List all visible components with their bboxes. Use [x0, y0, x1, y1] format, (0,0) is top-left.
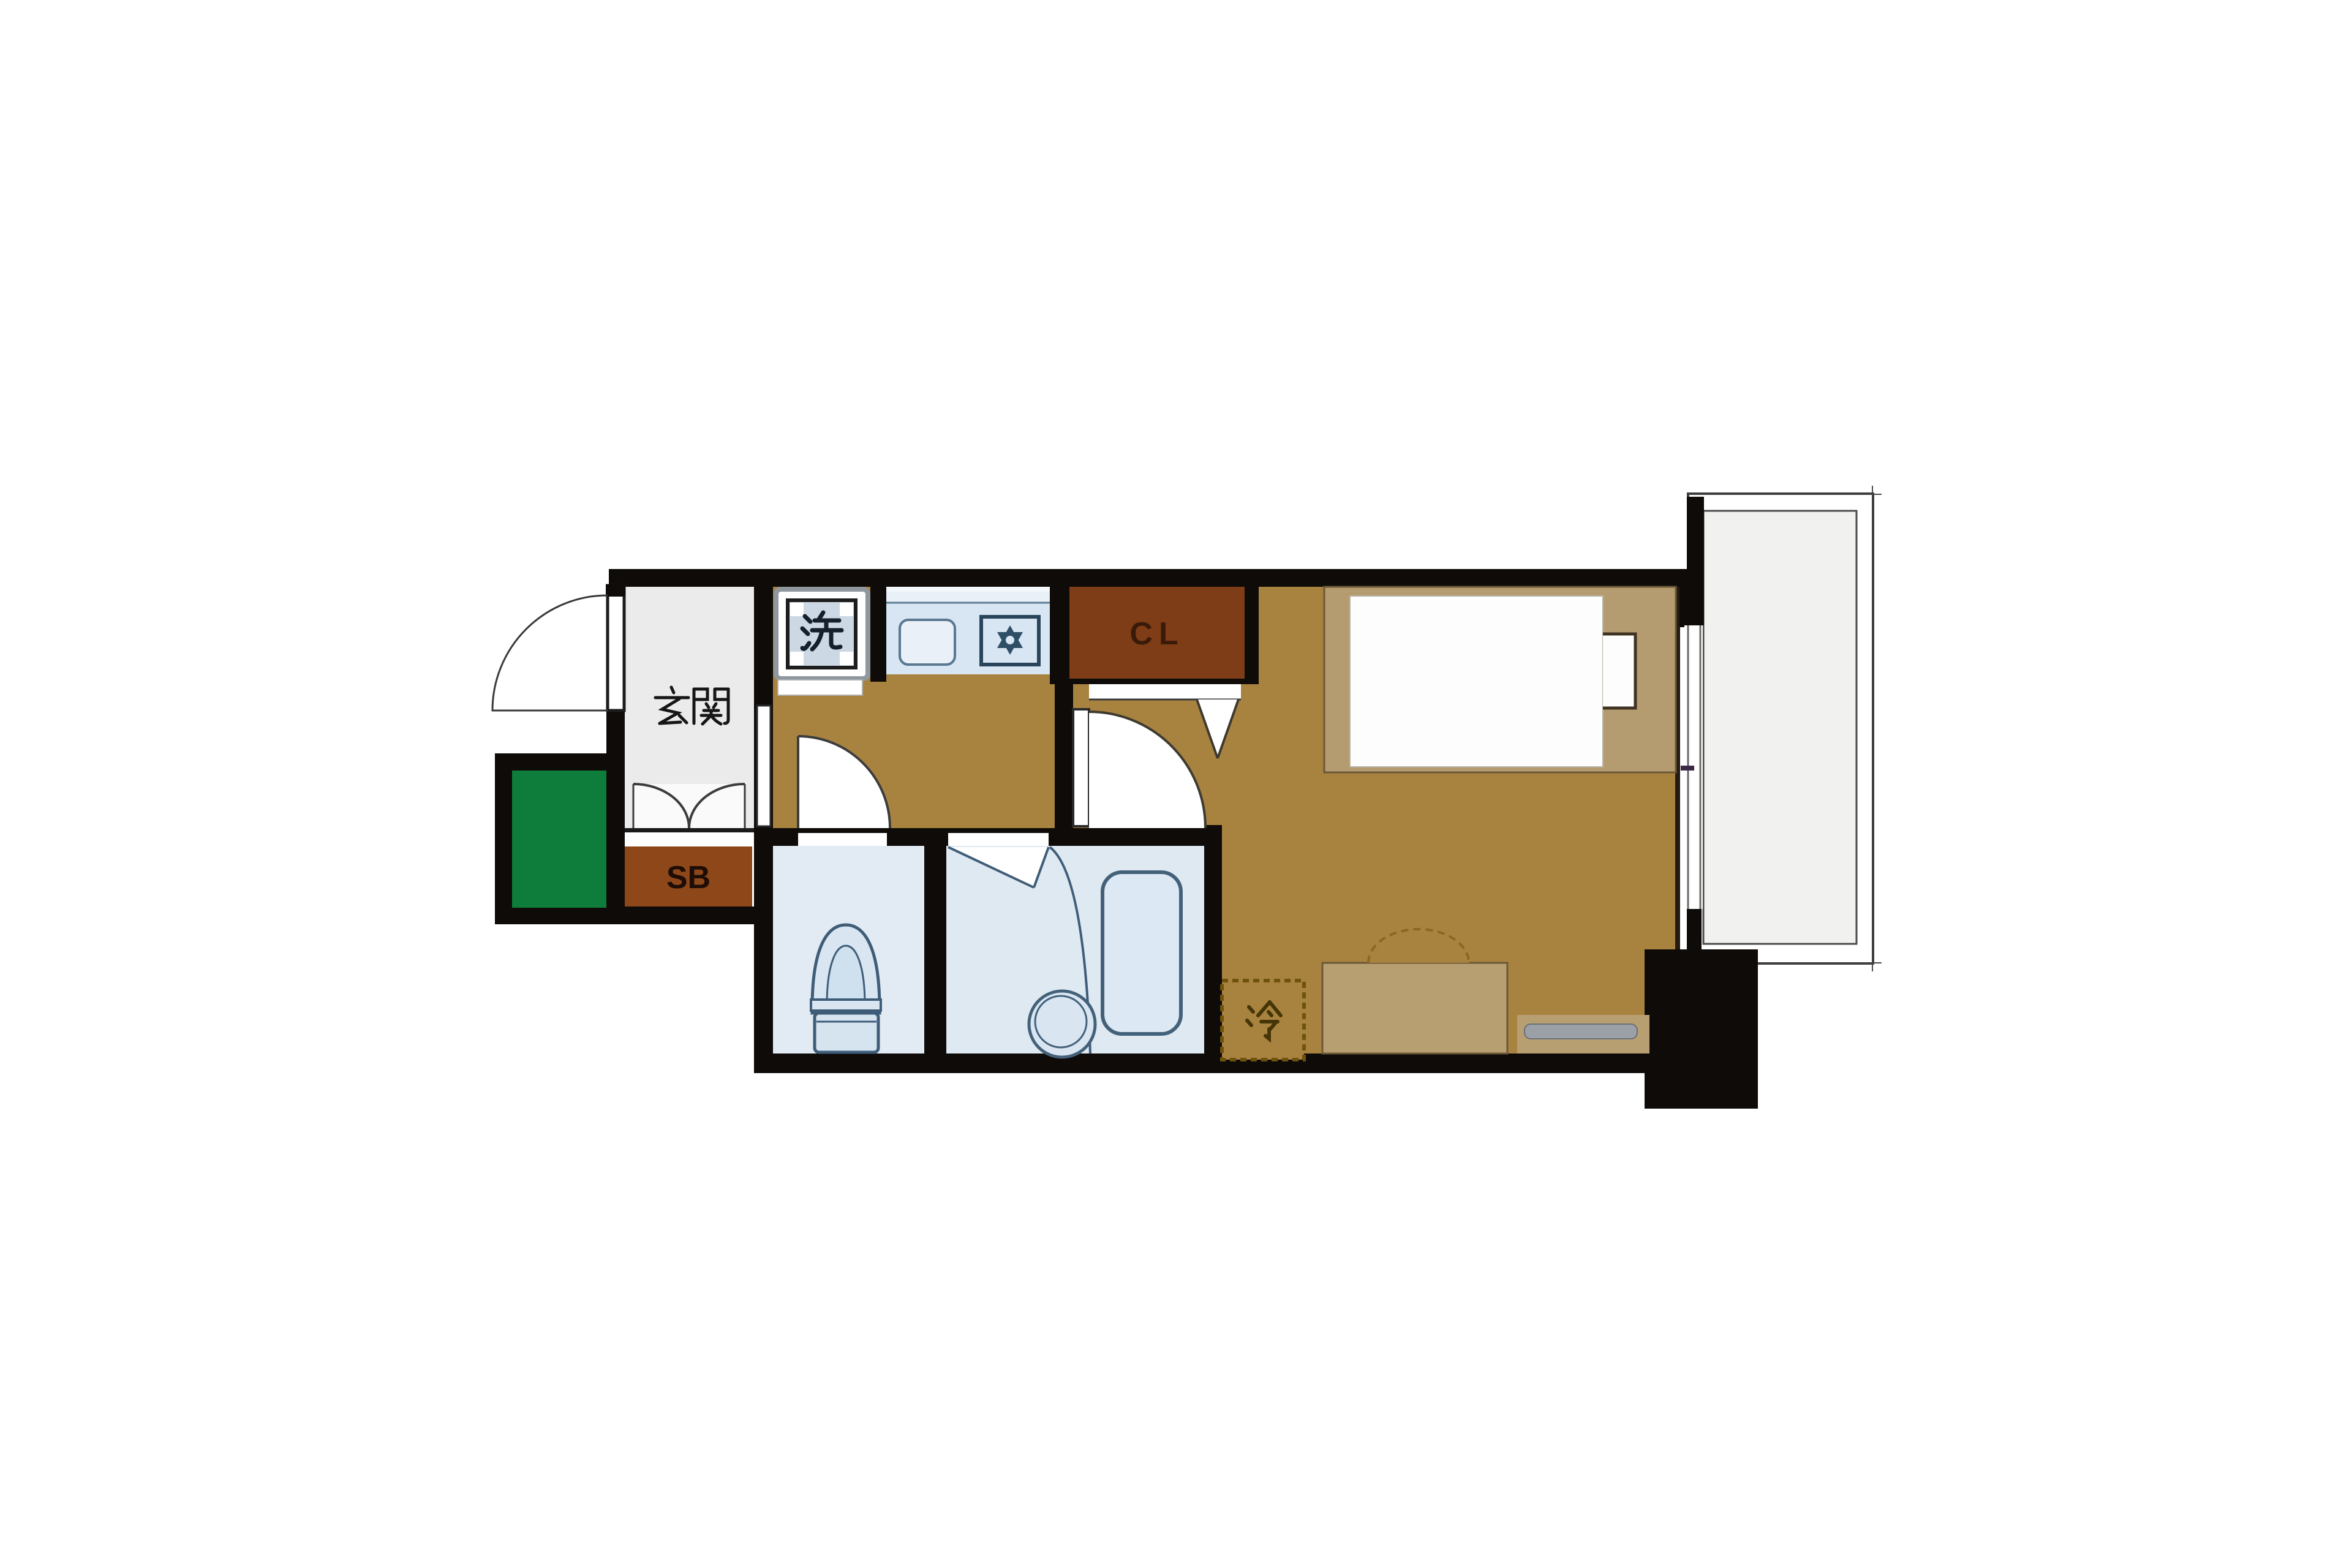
svg-text:SB: SB [666, 860, 710, 895]
svg-text:CL: CL [1129, 616, 1184, 652]
